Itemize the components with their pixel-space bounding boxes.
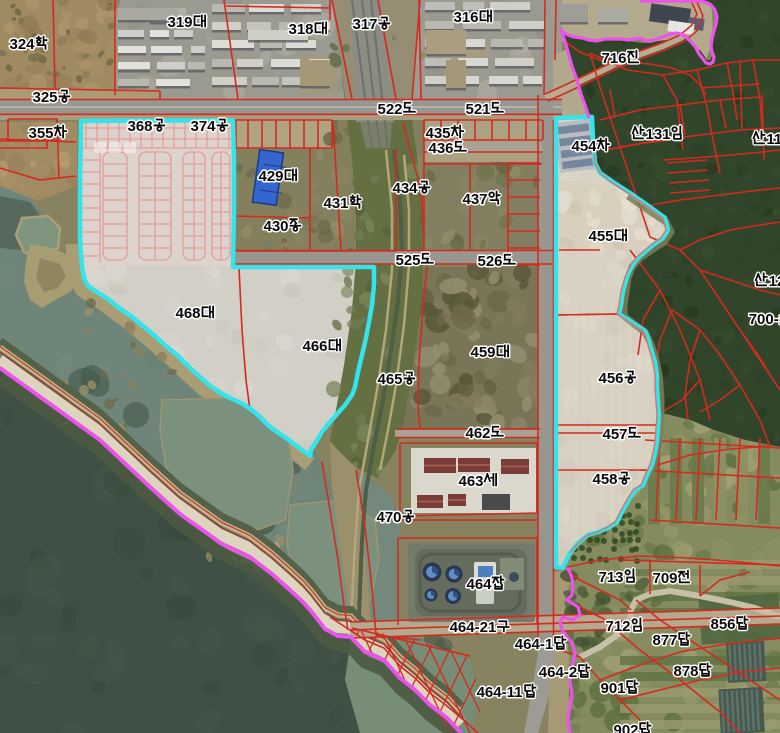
svg-text:316: 316 [454,9,479,26]
svg-text:464-2: 464-2 [539,664,577,681]
svg-text:111: 111 [766,131,780,148]
svg-text:457: 457 [603,426,628,443]
svg-text:368: 368 [128,118,153,135]
svg-text:901: 901 [601,680,626,697]
svg-text:856: 856 [711,616,736,633]
svg-text:470: 470 [377,509,402,526]
svg-text:431: 431 [324,195,349,212]
svg-text:464-21: 464-21 [450,619,497,636]
svg-text:319: 319 [168,14,193,31]
svg-text:458: 458 [593,471,618,488]
svg-text:374: 374 [191,118,217,135]
svg-text:324: 324 [10,36,36,53]
svg-text:131: 131 [646,126,671,143]
svg-text:522: 522 [378,101,403,118]
svg-text:430: 430 [264,218,289,235]
svg-text:700-1: 700-1 [749,311,780,328]
svg-text:521: 521 [466,101,491,118]
svg-text:525: 525 [396,252,421,269]
svg-text:463: 463 [459,473,484,490]
svg-text:526: 526 [478,253,503,270]
svg-text:902: 902 [614,722,639,733]
svg-text:434: 434 [393,180,419,197]
svg-text:355: 355 [29,125,54,142]
svg-text:464-1: 464-1 [515,636,553,653]
svg-text:468: 468 [176,305,201,322]
svg-text:878: 878 [674,663,699,680]
svg-text:464-11: 464-11 [477,684,523,701]
svg-text:464: 464 [467,576,493,593]
svg-text:318: 318 [289,21,314,38]
svg-text:713: 713 [599,569,624,586]
svg-text:712: 712 [606,618,631,635]
svg-text:12: 12 [769,273,780,290]
svg-text:877: 877 [653,632,678,649]
svg-text:465: 465 [378,371,403,388]
svg-text:455: 455 [589,228,614,245]
svg-text:317: 317 [353,16,378,33]
svg-text:462: 462 [466,425,491,442]
svg-text:709: 709 [653,570,678,587]
svg-text:325: 325 [33,89,58,106]
svg-text:459: 459 [471,344,496,361]
svg-text:454: 454 [572,138,598,155]
svg-text:716: 716 [602,50,627,67]
svg-text:456: 456 [599,370,624,387]
svg-text:466: 466 [303,338,328,355]
svg-text:436: 436 [429,140,454,157]
svg-text:429: 429 [259,168,284,185]
svg-text:437: 437 [463,191,488,208]
